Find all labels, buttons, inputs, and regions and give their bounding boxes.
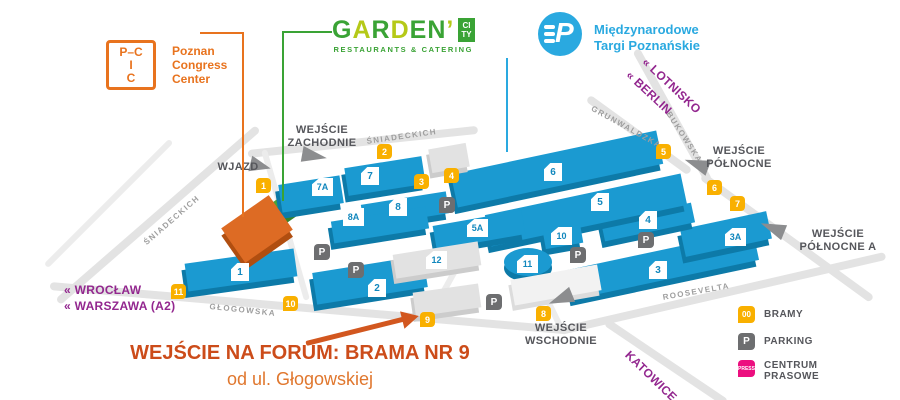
building-label: 8A [343,208,364,226]
legend-label: CENTRUM PRASOWE [764,360,819,382]
direction-warszawa: « WARSZAWA (A2) [64,299,175,313]
mtp-logo: P [538,12,582,56]
building-7A [278,175,344,212]
street-label-sniadeckich-upper: ŚNIADECKICH [366,127,438,146]
mtp-logo-bar [544,25,555,29]
gate-9: 9 [420,312,435,327]
gate-10: 10 [283,296,298,311]
legend-item-centrum-prasowe: PRESS CENTRUM PRASOWE [738,360,819,382]
legend-label: PARKING [764,333,813,350]
entrance-polnocne-label: WEJŚCIE PÓŁNOCNE [703,145,775,171]
gate-2: 2 [377,144,392,159]
parking-icon: P [348,262,364,278]
parking-legend-icon: P [738,333,755,350]
gate-4: 4 [444,168,459,183]
parking-icon: P [486,294,502,310]
mtp-logo-bar [544,32,555,36]
direction-wroclaw: « WROCŁAW [64,283,141,297]
parking-icon: P [314,244,330,260]
pcc-logo-line: I [129,59,132,72]
entrance-wschodnie-label: WEJŚCIE WSCHODNIE [518,322,604,348]
mtp-logo-monogram: P [555,17,574,49]
gate-8: 8 [536,306,551,321]
garden-wordmark: GARDEN’ [332,18,454,43]
legend-item-parking: P PARKING [738,333,813,350]
garden-callout-line [282,31,284,201]
pcc-logo: P–C I C [106,40,156,90]
parking-icon: P [439,197,455,213]
gate-11: 11 [171,284,186,299]
garden-callout-line [282,31,332,33]
legend-label: BRAMY [764,306,803,323]
gate-7: 7 [730,196,745,211]
parking-icon: P [638,232,654,248]
pcc-callout-line [242,32,244,217]
garden-city-box: CITY [458,18,474,42]
gate-1: 1 [256,178,271,193]
entrance-wjazd-label: WJAZD [215,161,261,174]
pcc-logo-name: Poznan Congress Center [172,44,227,86]
forum-subline: od ul. Głogowskiej [110,369,490,390]
mtp-logo-name: Międzynarodowe Targi Poznańskie [594,22,700,54]
entrance-polnocne-a-label: WEJŚCIE PÓŁNOCNE A [795,228,881,254]
fairground-map: P–C I C Poznan Congress Center GARDEN’CI… [0,0,900,400]
mtp-logo-bar [544,39,555,43]
entrance-zachodnie-label: WEJŚCIE ZACHODNIE [280,124,364,150]
gate-legend-icon: 00 [738,306,755,323]
pcc-callout-line [200,32,244,34]
parking-icon: P [570,247,586,263]
gate-6: 6 [707,180,722,195]
pcc-logo-line: P–C [119,46,142,59]
gate-5: 5 [656,144,671,159]
garden-city-logo: GARDEN’CITY RESTAURANTS & CATERING [332,18,475,54]
forum-headline: WEJŚCIE NA FORUM: BRAMA NR 9 [110,342,490,365]
garden-subtitle: RESTAURANTS & CATERING [332,45,475,54]
mtp-callout-line [506,58,508,152]
gate-3: 3 [414,174,429,189]
road-side [44,139,173,268]
pcc-logo-line: C [127,72,136,85]
legend-item-bramy: 00 BRAMY [738,306,803,323]
press-legend-icon: PRESS [738,360,755,377]
